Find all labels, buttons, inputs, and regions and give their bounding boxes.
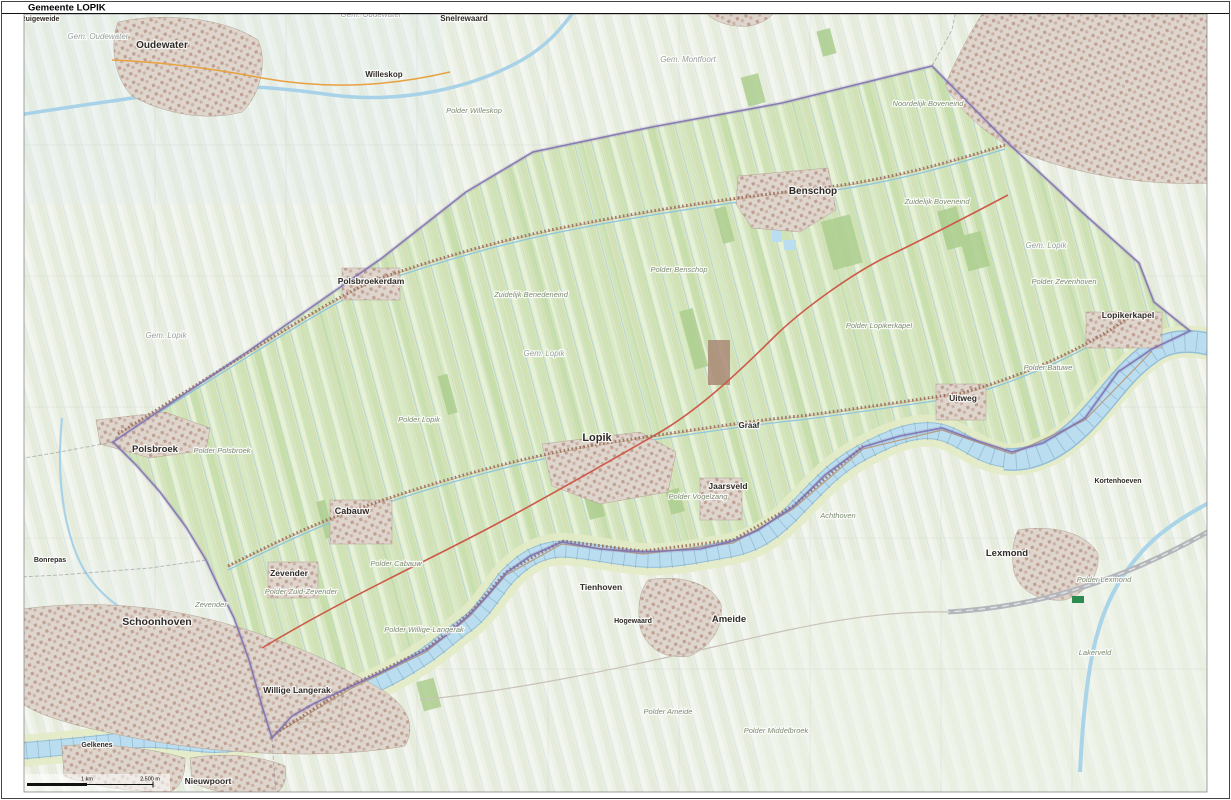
- map-label-gem-lopik-1: Gem. Lopik: [524, 349, 566, 358]
- map-label-p-polsbroek: Polder Polsbroek: [193, 446, 251, 455]
- map-label-zuidelijk-benedeneind: Zuidelijk Benedeneind: [493, 290, 569, 299]
- map-label-tienhoven: Tienhoven: [580, 582, 622, 592]
- map-label-kortenhoeven: Kortenhoeven: [1094, 478, 1141, 485]
- map-label-zevender-area: Zevender: [194, 600, 227, 609]
- map-label-lexmond: Lexmond: [986, 548, 1028, 559]
- map-label-p-cabauw: Polder Cabauw: [370, 559, 422, 568]
- map-label-gem-oudewater-1: Gem. Oudewater: [68, 32, 129, 41]
- map-label-cabauw: Cabauw: [335, 506, 371, 516]
- map-label-p-batuwe: Polder Batuwe: [1024, 363, 1073, 372]
- motorway-shield: [1072, 596, 1084, 603]
- built-block: [708, 340, 730, 385]
- map-label-p-zevenhoven: Polder Zevenhoven: [1031, 277, 1096, 286]
- map-content: OudewaterSchoonhovenBenschopLopikPolsbro…: [0, 0, 1231, 800]
- map-label-hogewaard: Hogewaard: [614, 618, 652, 625]
- map-label-zuidelijk-boveneind: Zuidelijk Boveneind: [903, 197, 970, 206]
- map-label-snelrewaard: Snelrewaard: [440, 14, 488, 23]
- map-label-polsbroek: Polsbroek: [132, 444, 179, 455]
- map-label-ameide: Ameide: [712, 614, 746, 625]
- map-label-lopik: Lopik: [582, 432, 612, 444]
- map-label-zevender: Zevender: [270, 568, 308, 578]
- scalebar-label-km: 1 km: [81, 777, 93, 783]
- map-label-p-ameide: Polder Ameide: [644, 707, 693, 716]
- map-label-gem-lopik-3: Gem. Lopik: [146, 331, 188, 340]
- map-label-p-lopik: Polder Lopik: [398, 415, 441, 424]
- map-label-jaarsveld: Jaarsveld: [708, 481, 747, 491]
- map-label-p-willeskop: Polder Willeskop: [446, 106, 502, 115]
- map-label-willige-langerak: Willige Langerak: [263, 685, 331, 695]
- map-label-lopikerkapel: Lopikerkapel: [1102, 310, 1154, 320]
- map-label-p-lopikerkapel: Polder Lopikerkapel: [846, 321, 913, 330]
- map-page: OudewaterSchoonhovenBenschopLopikPolsbro…: [0, 0, 1231, 800]
- map-label-nieuwpoort: Nieuwpoort: [185, 776, 232, 786]
- map-label-p-zuid-zevender: Polder Zuid-Zevender: [265, 587, 338, 596]
- map-label-achthoven: Achthoven: [819, 511, 855, 520]
- map-label-graaf: Graaf: [739, 421, 760, 430]
- map-label-uitweg: Uitweg: [949, 393, 977, 403]
- scalebar: 1 km 2.500 m: [24, 774, 170, 791]
- map-label-lakerveld: Lakerveld: [1079, 648, 1112, 657]
- scalebar-label-m: 2.500 m: [140, 777, 160, 783]
- map-label-bonrepas: Bonrepas: [34, 557, 66, 564]
- map-label-gelkenes: Gelkenes: [81, 742, 112, 749]
- topo-map-canvas: OudewaterSchoonhovenBenschopLopikPolsbro…: [0, 0, 1231, 800]
- page-title: Gemeente LOPIK: [28, 3, 106, 14]
- map-label-p-middelbroek: Polder Middelbroek: [744, 726, 810, 735]
- map-label-polsbroekerdam: Polsbroekerdam: [338, 276, 405, 286]
- map-label-benschop: Benschop: [789, 186, 837, 197]
- map-label-oudewater: Oudewater: [136, 40, 188, 51]
- map-label-p-willige-langerak: Polder Willige-Langerak: [384, 625, 465, 634]
- map-label-p-vogelzang: Polder Vogelzang: [669, 492, 729, 501]
- map-label-noordelijk-boveneind: Noordelijk Boveneind: [893, 99, 965, 108]
- map-label-ruigeweide: Ruigeweide: [21, 16, 60, 23]
- map-label-schoonhoven: Schoonhoven: [122, 616, 191, 628]
- map-label-p-lexmond: Polder Lexmond: [1077, 575, 1132, 584]
- map-label-gem-lopik-2: Gem. Lopik: [1026, 241, 1068, 250]
- map-label-gem-montfoort: Gem. Montfoort: [660, 55, 716, 64]
- map-label-willeskop: Willeskop: [365, 70, 402, 79]
- map-label-p-benschop: Polder Benschop: [650, 265, 707, 274]
